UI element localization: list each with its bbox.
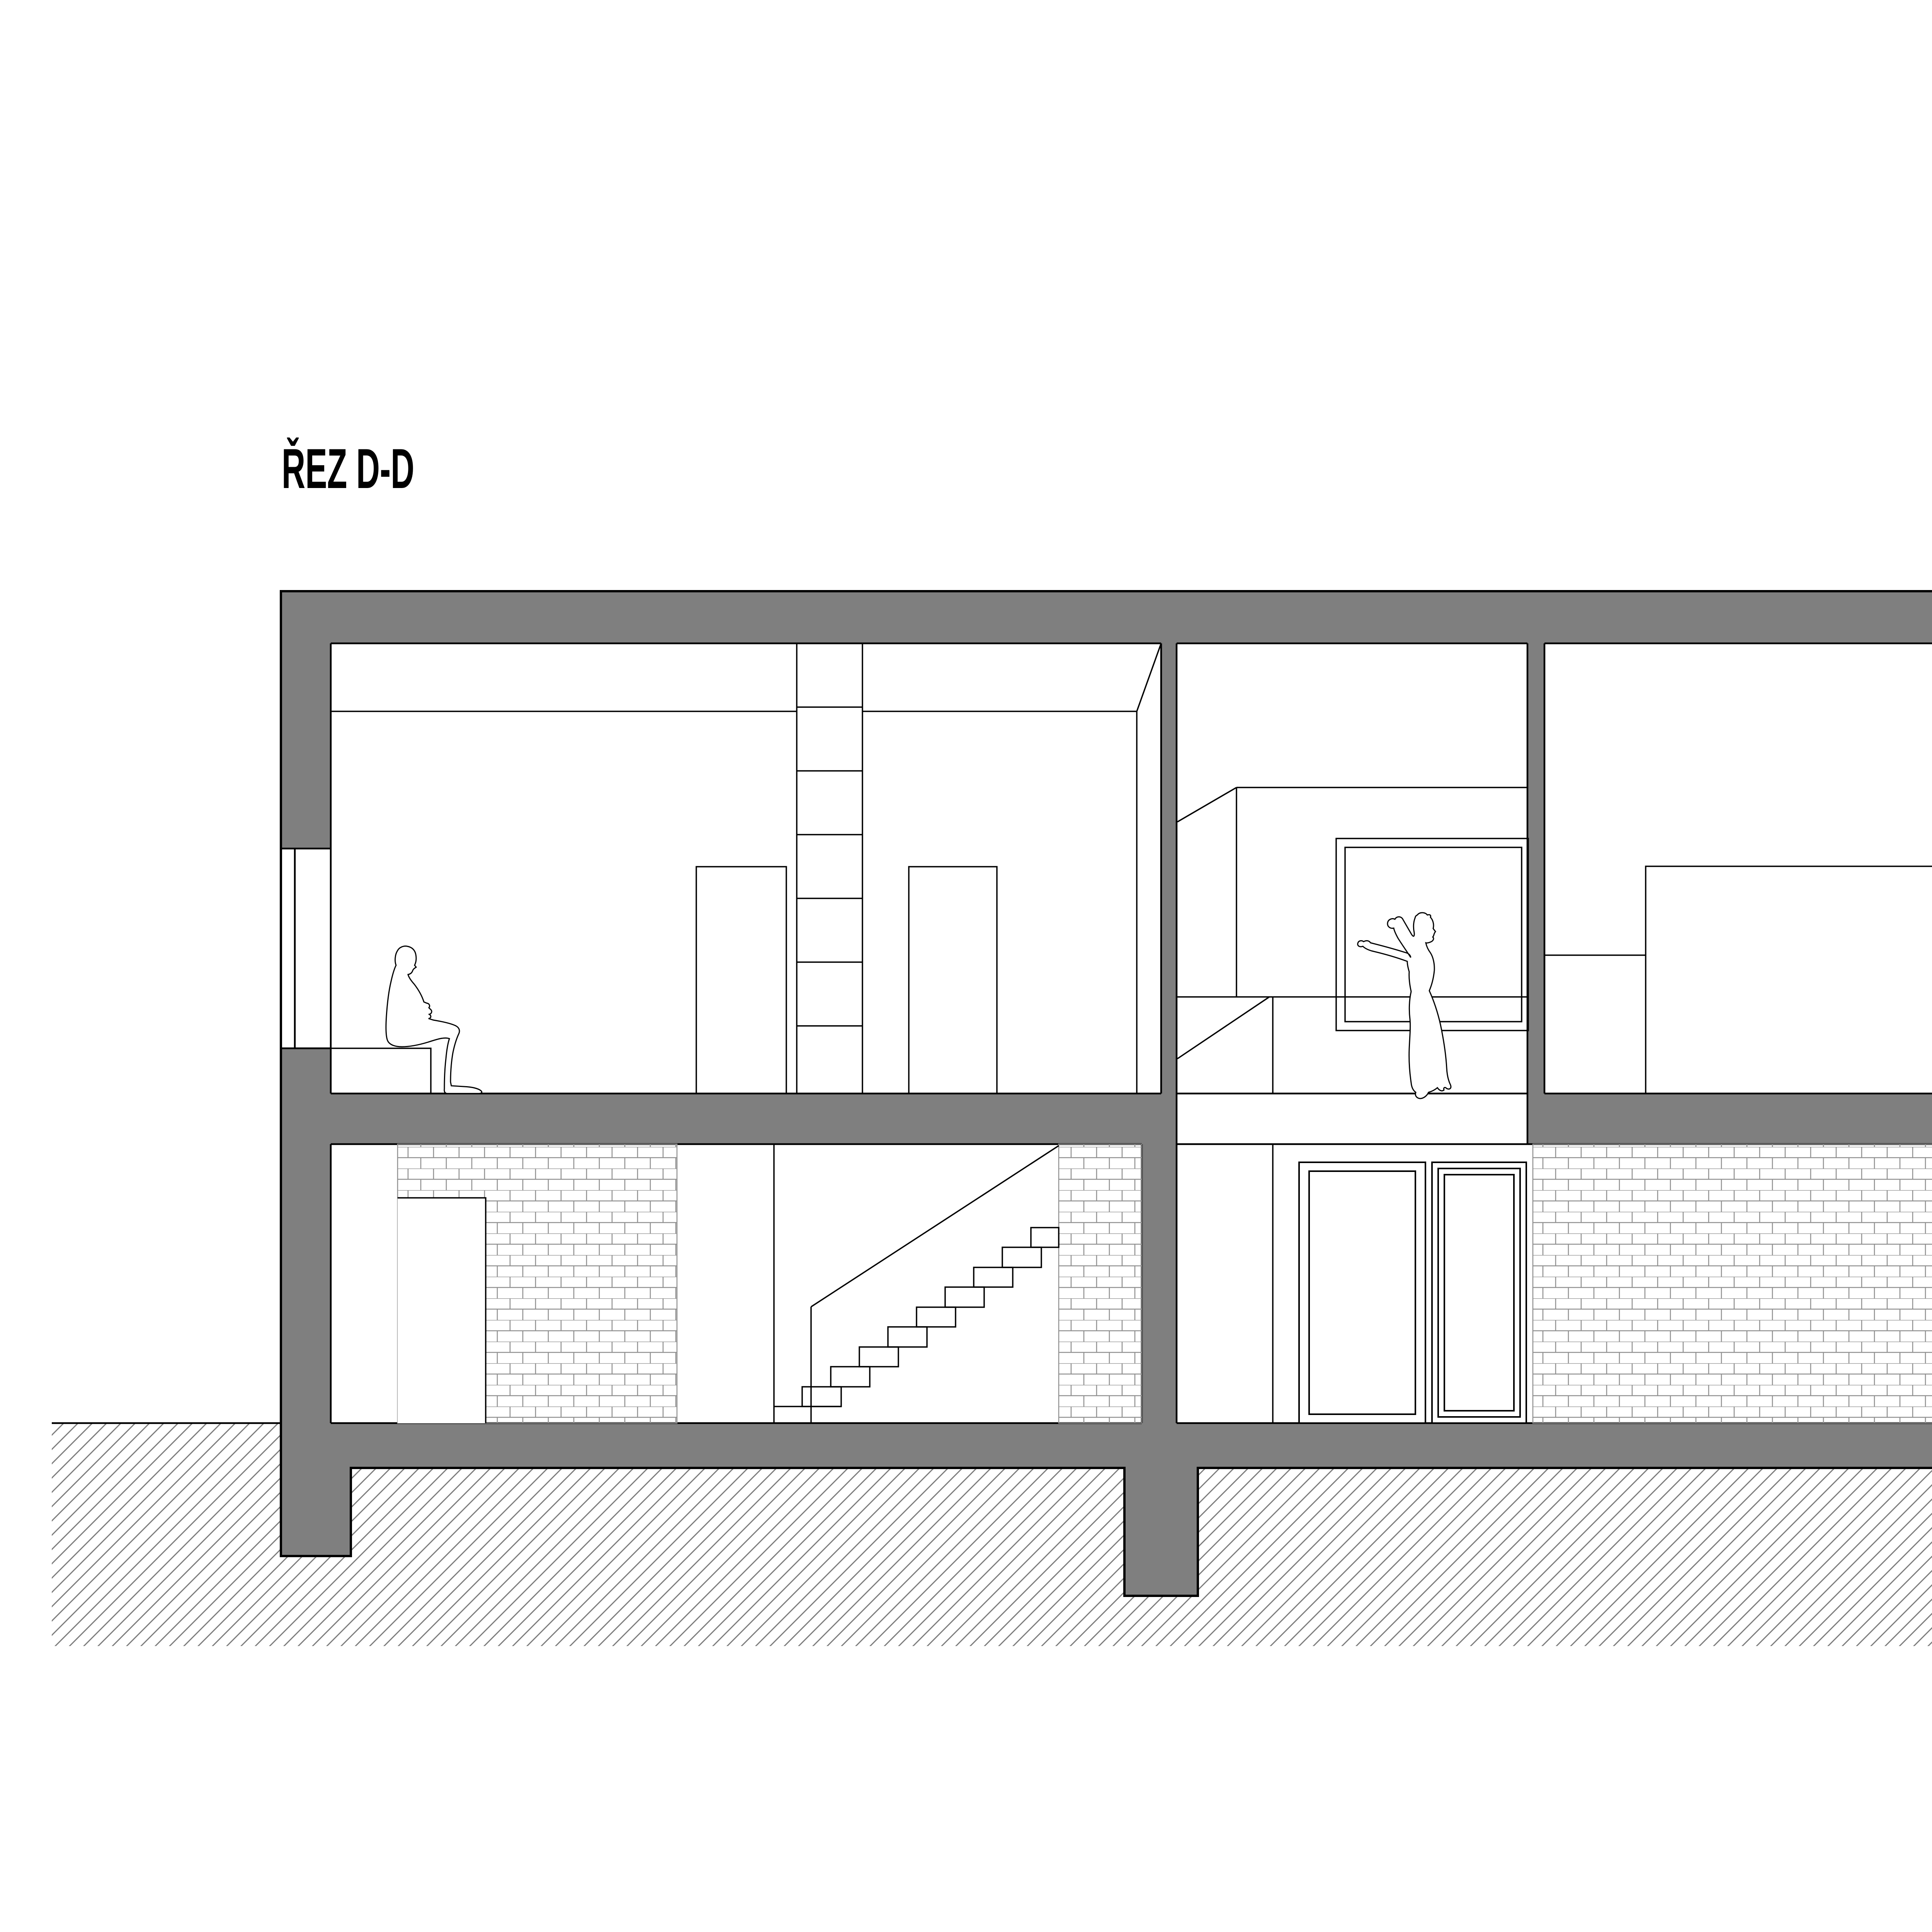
section-drawing-canvas: ŘEZ D-D	[0, 0, 1932, 1932]
upper-floor-slab-left	[331, 1094, 1177, 1144]
left-exterior-wall-lower	[281, 1048, 331, 1468]
french-windows	[1299, 1162, 1526, 1423]
earth-under-building	[281, 1468, 1932, 1646]
roof-slab	[281, 591, 1932, 643]
left-exterior-wall-upper	[281, 643, 331, 849]
french-window-2-inner	[1444, 1175, 1514, 1411]
partition-wall-right	[1527, 643, 1544, 1144]
left-foundation	[281, 1468, 351, 1556]
brick-wall-right	[1533, 1144, 1932, 1423]
central-wall-upper	[1161, 643, 1177, 1094]
brick-pier	[1059, 1144, 1142, 1423]
earth-left	[52, 1423, 281, 1646]
ground-slab	[281, 1423, 1932, 1468]
french-window-1-inner	[1309, 1171, 1415, 1414]
section-title: ŘEZ D-D	[282, 437, 414, 500]
upper-floor-slab-right	[1544, 1094, 1932, 1144]
central-wall-lower	[1142, 1144, 1177, 1423]
central-foundation	[1124, 1468, 1198, 1596]
door-opening-in-brick	[398, 1198, 486, 1423]
